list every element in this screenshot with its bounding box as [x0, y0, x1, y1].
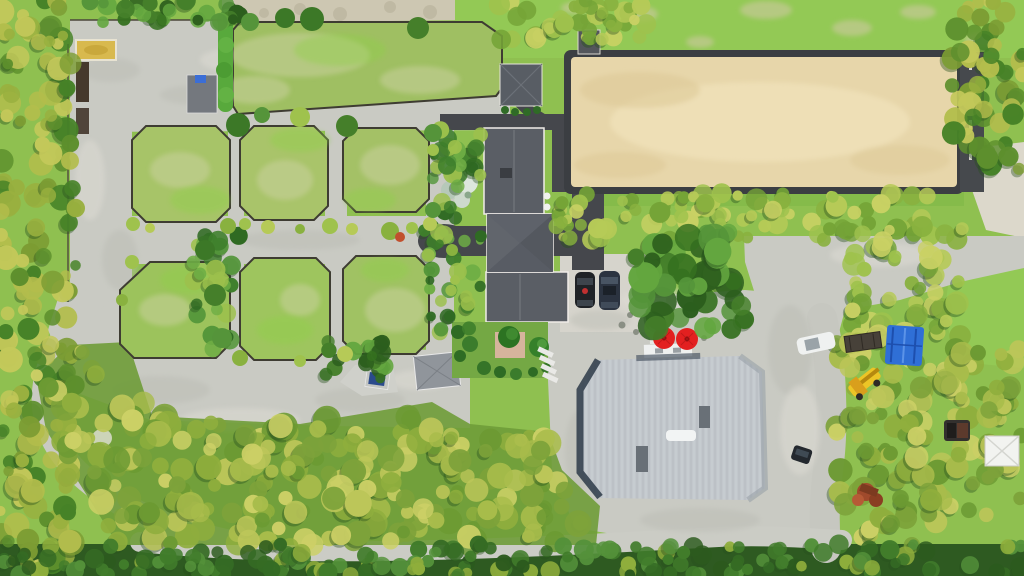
- aerial-photo-stage: [0, 0, 1024, 576]
- chimney: [500, 168, 512, 178]
- white-planter-2: [544, 204, 551, 211]
- shed-northwest: [187, 75, 217, 113]
- barn-skylight-1: [699, 406, 710, 428]
- pickup-truck: [944, 420, 970, 441]
- parked-car-suv: [599, 271, 620, 310]
- aerial-estate-scene: [0, 0, 1024, 576]
- hip-faces: [487, 214, 553, 272]
- barn-skylight-2: [636, 446, 648, 472]
- barn-roof-corrugation: [578, 356, 765, 500]
- patio-table-1: [655, 348, 663, 353]
- barn-ridge-cap: [666, 430, 696, 441]
- house-south-wing-roof: [486, 272, 568, 322]
- barn: [578, 356, 765, 500]
- blue-tarp-on-shed: [195, 75, 206, 83]
- white-planter-1: [544, 193, 551, 200]
- red-flower-bush: [395, 232, 405, 242]
- sunroof-glint: [582, 288, 588, 294]
- riding-arena: [564, 30, 984, 194]
- sand-pad-mottle: [84, 45, 108, 55]
- parked-car-sedan: [575, 272, 595, 308]
- white-canopy-tent: [985, 436, 1019, 466]
- patio-table-2: [673, 348, 681, 353]
- blue-tarp-structure: [885, 325, 925, 366]
